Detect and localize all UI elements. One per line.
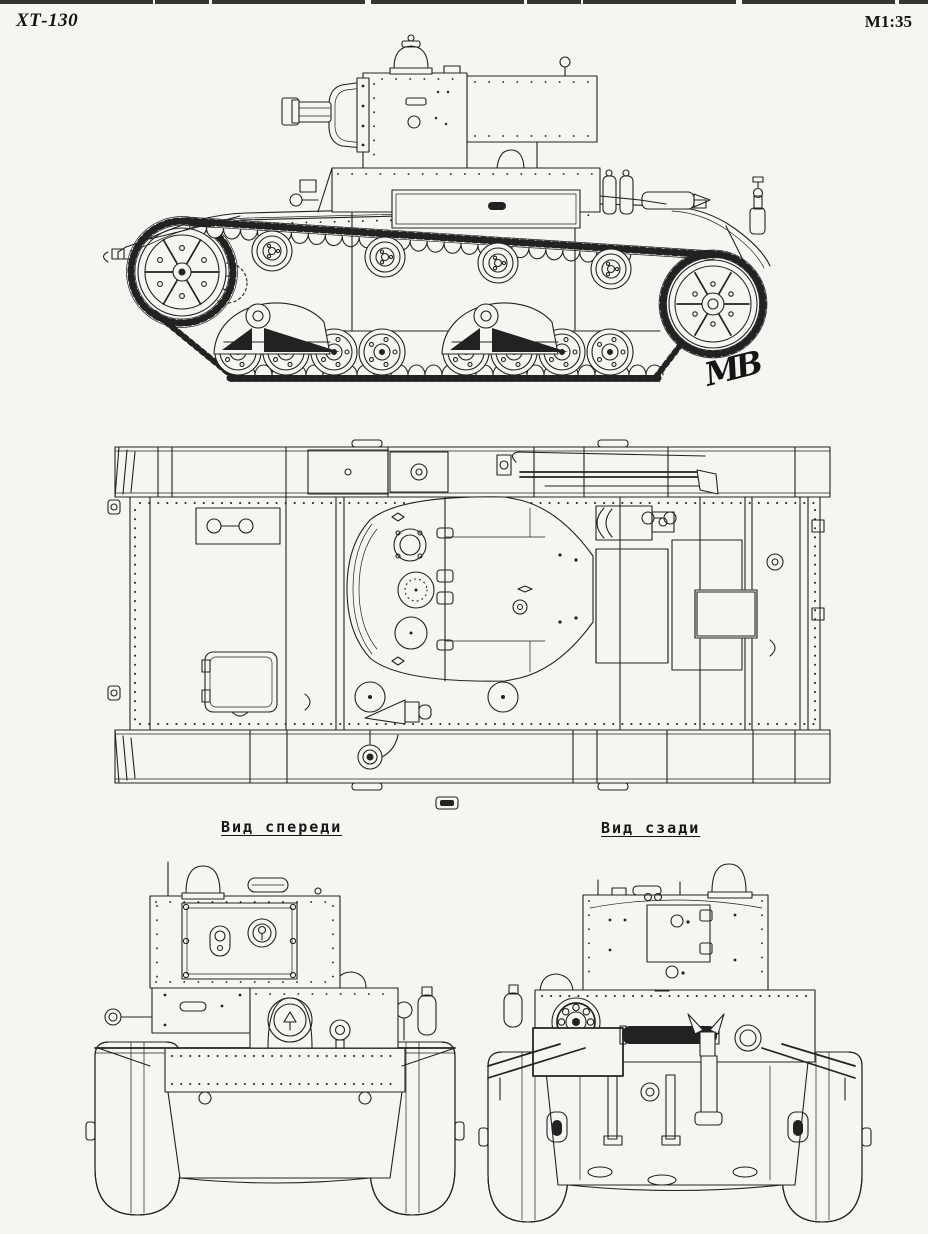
front-view-drawing bbox=[86, 862, 464, 1215]
top-turret bbox=[347, 497, 593, 681]
side-view-drawing: МВ bbox=[104, 35, 771, 394]
side-drive-sprocket bbox=[669, 260, 757, 348]
rear-view-drawing bbox=[479, 864, 871, 1222]
rear-hull-lower bbox=[545, 1062, 808, 1191]
side-superstructure bbox=[290, 150, 710, 228]
top-view-drawing bbox=[108, 440, 830, 809]
side-turret bbox=[282, 35, 597, 168]
front-turret bbox=[150, 862, 340, 988]
blueprint-page: { "page": { "colors": { "paper": "#f6f5f… bbox=[0, 0, 928, 1234]
rear-turret bbox=[583, 864, 768, 990]
blueprint-canvas: МВ bbox=[0, 0, 928, 1234]
